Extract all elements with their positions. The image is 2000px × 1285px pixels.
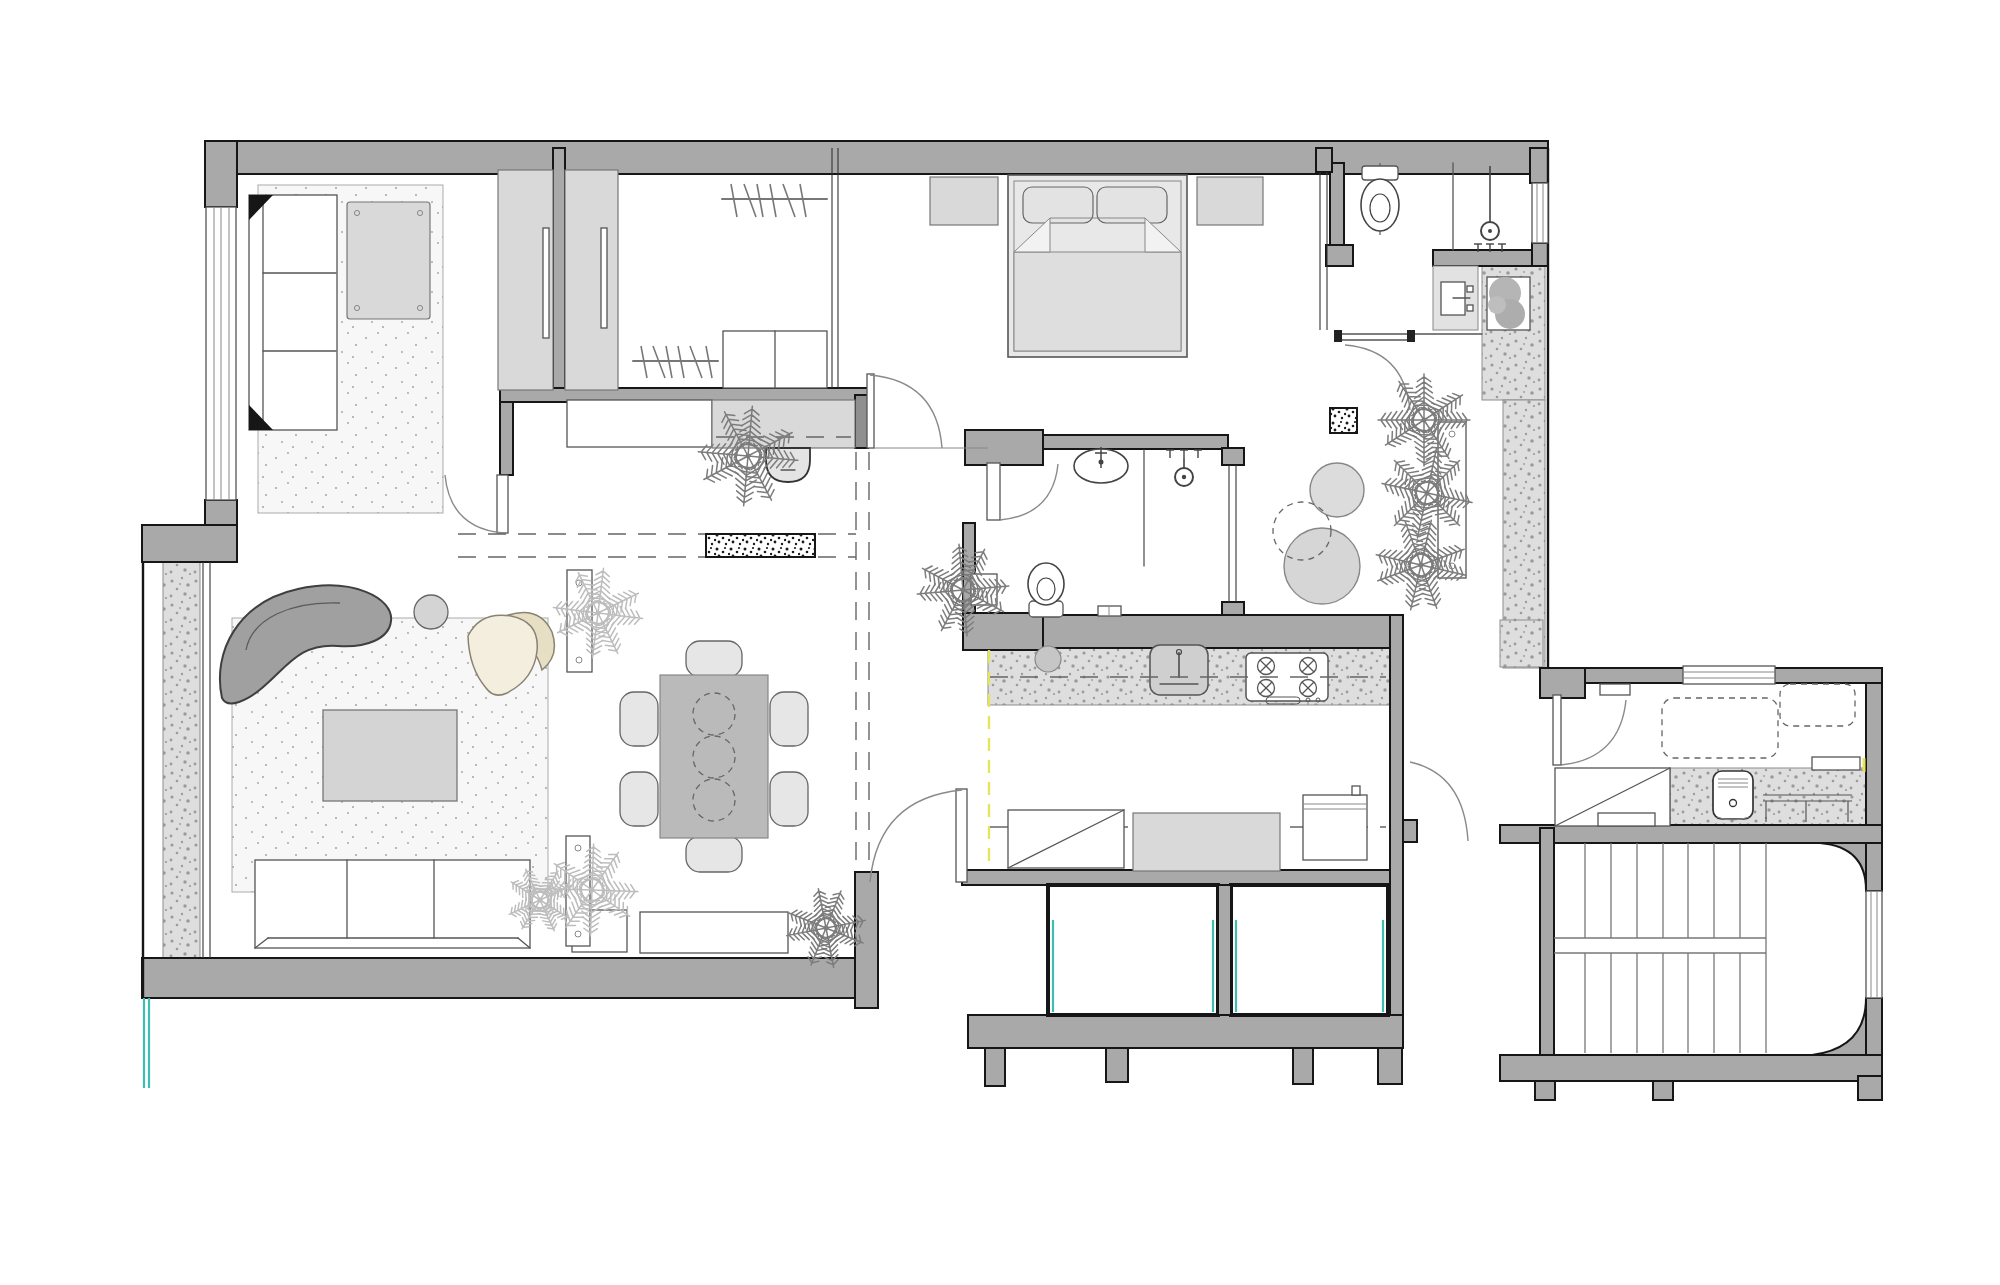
oven-knob	[1352, 786, 1360, 795]
palm-plant-light	[544, 559, 653, 668]
wall-utility-east	[1866, 683, 1882, 828]
door-leaf	[867, 374, 874, 448]
door-swing	[1000, 464, 1058, 520]
wall-bath-kitchen	[1043, 615, 1403, 648]
window-shower-east	[1532, 183, 1548, 243]
palm-center	[1418, 562, 1424, 568]
sideboard-white	[567, 400, 712, 447]
wall-pier-top-left	[205, 141, 237, 207]
wall-pier-bed2	[1316, 148, 1332, 172]
door-leaf	[987, 463, 1000, 520]
bed-blanket	[1014, 252, 1181, 351]
wall-stair-east-lower	[1866, 998, 1882, 1058]
drain	[1099, 460, 1104, 465]
room-master-bedroom	[867, 175, 1263, 448]
stair-fillet-top	[1820, 843, 1866, 890]
pier-stair-s2	[1653, 1081, 1673, 1100]
toilet-top	[1361, 166, 1399, 231]
wall-door-stub	[500, 402, 513, 475]
wall-utility-nw-block	[1540, 668, 1585, 698]
faucet-handle	[1467, 305, 1473, 311]
toilet-bowl	[1361, 179, 1399, 231]
wall-bath-north	[1043, 435, 1228, 449]
crossed-cabinet	[1555, 768, 1670, 826]
pocket-door	[1334, 330, 1482, 342]
shrub	[1488, 296, 1506, 314]
wall-top	[205, 141, 1548, 174]
cabinet-drawer	[1598, 813, 1655, 826]
dresser	[723, 331, 827, 388]
nightstand-right	[1197, 177, 1263, 225]
toilet-paper-holder	[1098, 606, 1121, 616]
stair-treads-upper	[1585, 843, 1740, 938]
wall-pier-east	[1532, 243, 1548, 266]
utility-wall-box	[1600, 684, 1630, 695]
wall-pier-courtyard-n	[1222, 448, 1244, 465]
shower-top	[1474, 166, 1506, 252]
window-utility-north	[1683, 666, 1775, 684]
door-bathroom-mid	[987, 463, 1058, 520]
pocket-door-stop	[1407, 330, 1415, 342]
oven-body	[1303, 795, 1367, 860]
column-speckle	[1330, 408, 1357, 433]
lightwell-divider	[1218, 885, 1231, 1015]
wardrobe-door-slot	[543, 228, 549, 338]
pier-stair-s3	[1858, 1076, 1882, 1100]
desk-top	[347, 202, 430, 319]
sideboard-end-cap	[855, 395, 868, 448]
entry-door-swing	[870, 790, 962, 882]
toilet-mid	[1028, 563, 1064, 617]
window-stair-east	[1866, 891, 1882, 998]
wall-shower-south	[1433, 250, 1548, 266]
vanity-top	[1433, 266, 1478, 330]
hangers-top	[731, 184, 806, 217]
toilet-bowl	[1028, 563, 1064, 605]
planter-top-right	[1487, 277, 1530, 330]
shower-mid	[1166, 450, 1202, 486]
washer-body	[1713, 771, 1753, 819]
lightwell-pier-4	[1378, 1048, 1402, 1084]
wall-utility-north-r	[1773, 668, 1882, 683]
crossed-appliance-box	[1008, 810, 1124, 868]
lightwell-pier-2	[1106, 1048, 1128, 1082]
tv-console	[255, 860, 530, 948]
hob-body	[1246, 653, 1328, 701]
beam-box-speckle	[706, 534, 815, 557]
oven	[1303, 786, 1367, 860]
door-leaf	[1553, 695, 1561, 765]
wall-entry-jamb	[855, 872, 878, 1008]
wall-wc-west	[1330, 163, 1344, 247]
shower-valve-icons	[1166, 450, 1202, 458]
toilet-tank	[1362, 166, 1398, 180]
door-swing-kitchen-east	[1410, 762, 1468, 841]
washing-machine	[1713, 771, 1753, 820]
stair-fillet-bottom	[1812, 998, 1866, 1055]
wall-wardrobe-divider	[553, 148, 565, 390]
entry-mat-large	[640, 912, 788, 953]
gas-hob	[1246, 653, 1328, 704]
wall-kitchen-east	[1390, 615, 1403, 1015]
lightwell-pier-1	[985, 1048, 1005, 1086]
sideboard-row	[567, 400, 855, 482]
corridor-terrazzo-patch	[1500, 620, 1543, 667]
wall-ne-corner	[1530, 148, 1548, 183]
lightwell-bay-1	[1048, 885, 1218, 1015]
laundry-counter-terrazzo	[1670, 768, 1867, 826]
stair-treads-lower	[1585, 953, 1740, 1053]
door-swing	[1561, 700, 1626, 765]
wall-pier-wc	[1326, 245, 1353, 266]
wall-living-south	[142, 958, 868, 998]
faucet-handle	[1467, 286, 1473, 292]
coffee-table	[323, 710, 457, 801]
dining-table	[660, 675, 768, 838]
wall-kitchen-notch	[1403, 820, 1417, 842]
door-utility	[1553, 695, 1626, 765]
kitchen-lower-cabinet	[1133, 813, 1280, 871]
nightstand-left	[930, 177, 998, 225]
speckled-column	[1330, 408, 1357, 433]
wall-stair-south	[1500, 1055, 1882, 1081]
pier-stair-s1	[1535, 1081, 1555, 1100]
console-outline	[255, 860, 530, 948]
beam-speckled-box	[706, 534, 815, 557]
room-bathroom-mid	[987, 447, 1202, 617]
wardrobe-right	[565, 170, 618, 390]
future-sofa-dashed	[1662, 698, 1778, 758]
wall-bath-sw-block	[963, 613, 1043, 650]
door-swing-courtyard	[1345, 345, 1410, 410]
palm-center	[745, 453, 751, 459]
staircase	[1554, 843, 1766, 1053]
wardrobe-door-slot	[601, 228, 607, 328]
utility-shelf-box	[1812, 757, 1860, 770]
wall-stair-north	[1500, 825, 1882, 843]
round-shrub-large	[1284, 528, 1360, 604]
palm-frond	[1378, 408, 1424, 432]
balcony-terrazzo	[163, 548, 200, 985]
desk	[347, 202, 430, 319]
straight-sofa	[249, 195, 337, 430]
door-swing	[445, 475, 503, 533]
door-swing	[870, 375, 942, 448]
wall-balcony-step	[142, 525, 237, 562]
lightwell-base-band	[968, 1015, 1403, 1048]
side-table	[414, 595, 448, 629]
future-cabinet-dashed	[1780, 684, 1855, 726]
round-shrub	[1310, 463, 1364, 517]
lightwell-bay-2	[1231, 885, 1388, 1015]
double-bed	[1008, 175, 1187, 357]
floor-plan-canvas	[0, 0, 2000, 1285]
door-leaf	[497, 475, 508, 533]
oval-washbasin	[1074, 447, 1128, 483]
wall-stair-east-upper	[1866, 843, 1882, 891]
entry-door-leaf	[956, 789, 967, 882]
palm-center	[823, 925, 830, 932]
door-study	[445, 475, 508, 533]
wall-stair-west	[1540, 828, 1554, 1058]
sofa-body	[249, 195, 337, 430]
light-wells	[968, 885, 1403, 1086]
lightwell-pier-3	[1293, 1048, 1313, 1084]
palm-center	[595, 610, 601, 616]
counter-round-basin	[1035, 646, 1061, 672]
floor-plan-page	[0, 0, 2000, 1285]
pocket-door-stop	[1334, 330, 1342, 342]
wall-kitchen-south	[962, 870, 1403, 885]
kitchen-sink	[1150, 645, 1208, 695]
